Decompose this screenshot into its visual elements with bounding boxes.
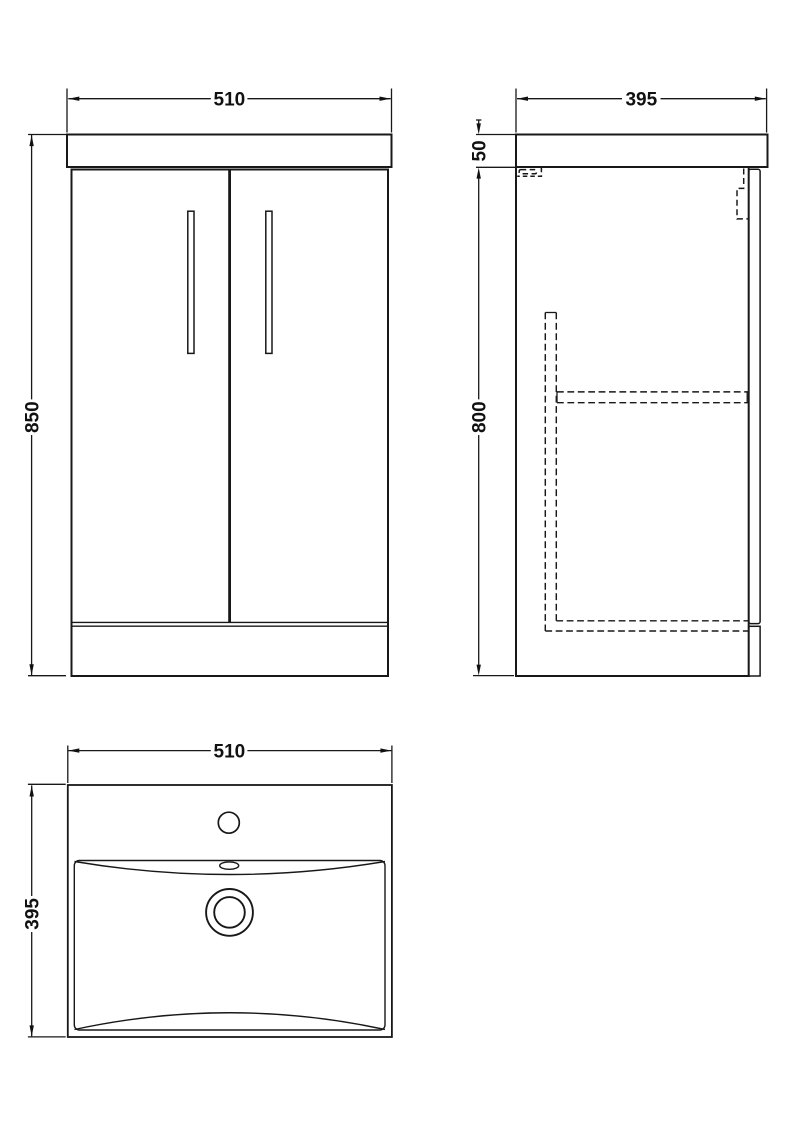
- svg-text:395: 395: [625, 89, 657, 110]
- svg-text:510: 510: [214, 741, 246, 762]
- svg-text:800: 800: [469, 401, 490, 433]
- svg-text:395: 395: [22, 898, 43, 930]
- svg-text:510: 510: [214, 89, 246, 110]
- svg-text:50: 50: [469, 140, 490, 161]
- svg-text:850: 850: [22, 401, 43, 433]
